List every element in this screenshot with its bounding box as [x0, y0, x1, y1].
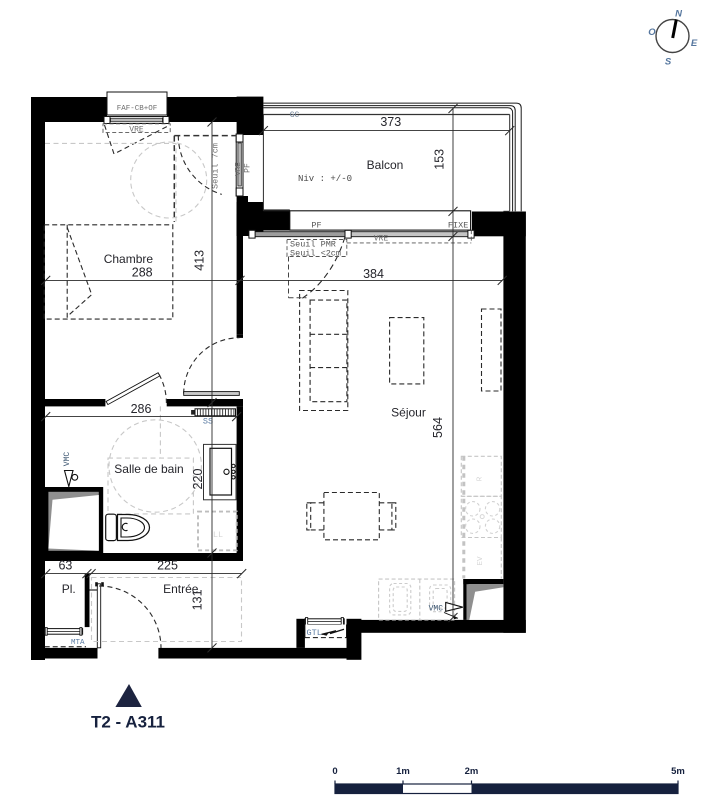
svg-text:PF: PF — [311, 221, 321, 231]
svg-text:Salle de bain: Salle de bain — [114, 462, 183, 476]
svg-text:E: E — [691, 38, 698, 49]
svg-text:VMC: VMC — [429, 605, 444, 614]
svg-text:564: 564 — [431, 417, 445, 438]
svg-text:Pl.: Pl. — [62, 582, 76, 596]
svg-text:0: 0 — [332, 766, 337, 777]
svg-text:R: R — [477, 476, 485, 481]
svg-text:153: 153 — [433, 149, 447, 170]
svg-text:225: 225 — [157, 559, 178, 573]
svg-text:VMC: VMC — [63, 452, 72, 467]
svg-text:GC: GC — [290, 111, 300, 120]
svg-text:EV: EV — [477, 556, 485, 566]
svg-text:MTA: MTA — [71, 639, 85, 647]
svg-text:1m: 1m — [396, 766, 410, 777]
svg-text:GTL: GTL — [307, 628, 322, 638]
svg-text:288: 288 — [132, 266, 153, 280]
svg-text:O: O — [648, 27, 656, 38]
svg-text:Niv : +/-0: Niv : +/-0 — [298, 174, 352, 184]
svg-text:T2 - A311: T2 - A311 — [91, 713, 165, 732]
svg-text:VRE: VRE — [374, 235, 389, 244]
svg-text:VRE: VRE — [235, 162, 243, 176]
svg-text:Séjour: Séjour — [391, 406, 426, 420]
svg-text:286: 286 — [131, 402, 152, 416]
svg-text:5m: 5m — [671, 766, 685, 777]
svg-text:Balcon: Balcon — [367, 158, 404, 172]
svg-text:S: S — [665, 57, 672, 68]
svg-text:FIXE: FIXE — [448, 221, 468, 231]
svg-text:Chambre: Chambre — [104, 252, 154, 266]
svg-text:LL: LL — [213, 530, 223, 540]
svg-text:131: 131 — [191, 589, 205, 610]
svg-text:373: 373 — [380, 115, 401, 129]
svg-text:63: 63 — [58, 559, 72, 573]
svg-text:PF: PF — [244, 163, 253, 173]
svg-text:384: 384 — [363, 267, 384, 281]
svg-text:VRE: VRE — [129, 125, 144, 134]
svg-text:2m: 2m — [465, 766, 479, 777]
svg-text:Seuil <2cm: Seuil <2cm — [290, 249, 341, 259]
svg-text:413: 413 — [193, 250, 207, 271]
svg-text:N: N — [675, 9, 683, 20]
svg-text:FAF-CB+OF: FAF-CB+OF — [117, 105, 158, 113]
svg-text:220: 220 — [191, 469, 205, 490]
